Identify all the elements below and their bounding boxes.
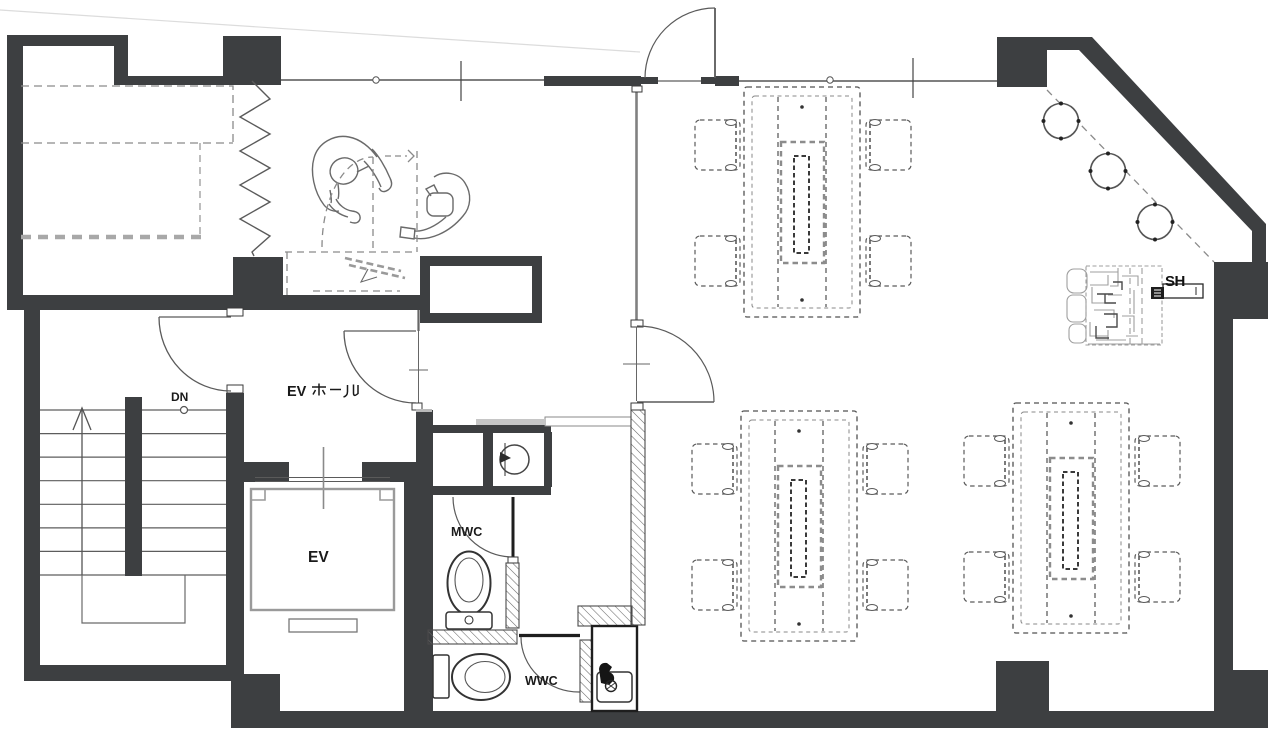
- svg-text:WWC: WWC: [525, 674, 558, 688]
- svg-text:DN: DN: [171, 390, 188, 404]
- svg-text:EV: EV: [308, 549, 329, 566]
- svg-text:MWC: MWC: [451, 525, 482, 539]
- svg-text:EV: EV: [287, 384, 307, 400]
- svg-text:SH: SH: [1165, 273, 1185, 290]
